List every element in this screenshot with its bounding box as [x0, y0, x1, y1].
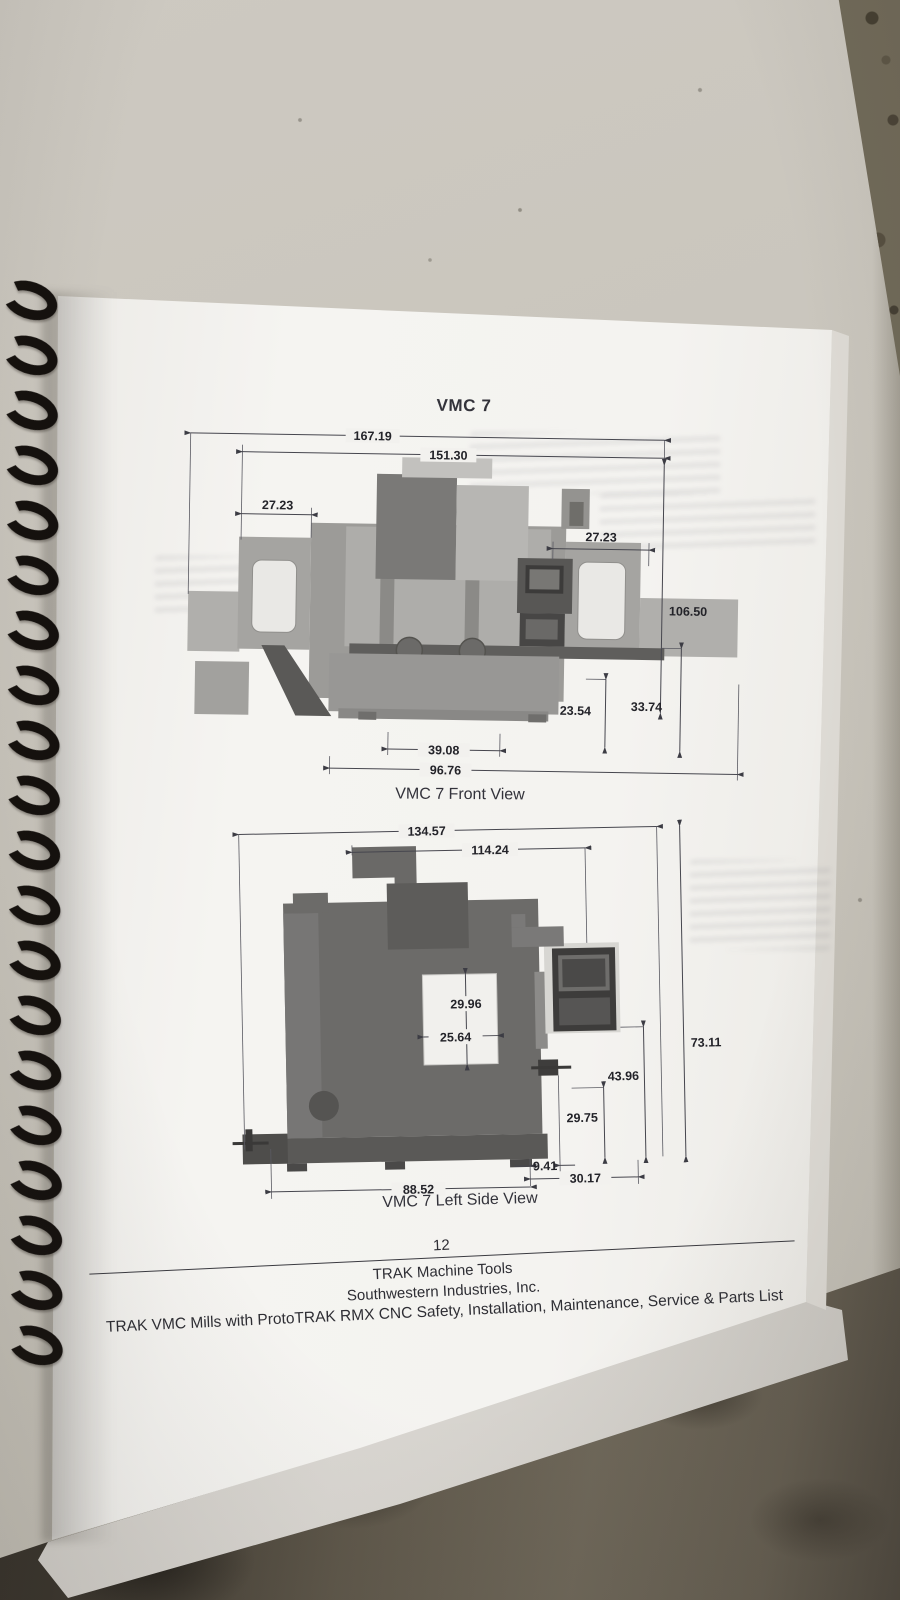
binding-coil [1, 878, 66, 932]
svg-text:167.19: 167.19 [353, 429, 391, 444]
binding-coil [0, 603, 64, 657]
head-block [387, 882, 469, 950]
binding-coil [1, 988, 66, 1042]
svg-text:27.23: 27.23 [262, 498, 294, 512]
foot [287, 1163, 307, 1171]
binding-coil [0, 273, 63, 327]
base-cabinet [328, 653, 559, 715]
svg-text:151.30: 151.30 [429, 448, 467, 463]
pendant-screen-glow [529, 569, 559, 589]
photo-scene: VMC 7 [0, 0, 900, 1600]
binding-coil [0, 328, 63, 382]
front-view-figure: 167.19 151.30 27.23 27.23 106.50 [157, 413, 748, 802]
svg-text:23.54: 23.54 [560, 704, 592, 718]
spiral-binding [2, 282, 98, 1382]
binding-coil [2, 1098, 67, 1152]
dim-pendant-height: 43.96 [607, 1027, 646, 1158]
left-wing [187, 591, 240, 652]
svg-text:25.64: 25.64 [440, 1030, 472, 1045]
svg-text:29.75: 29.75 [566, 1111, 598, 1126]
binding-coil [0, 493, 64, 547]
binding-coil [0, 713, 65, 767]
right-jack-bar [531, 1067, 571, 1068]
pendant-bracket [512, 926, 564, 947]
binding-coil [2, 1153, 67, 1207]
bracket-step [511, 914, 525, 927]
binding-coil [3, 1263, 68, 1317]
svg-text:30.17: 30.17 [570, 1171, 602, 1186]
left-door-window [252, 560, 297, 633]
svg-text:33.74: 33.74 [631, 700, 663, 714]
pendant-keys [526, 619, 558, 640]
svg-text:39.08: 39.08 [428, 743, 460, 757]
binding-coil [3, 1318, 68, 1372]
pendant-screen-inner [562, 958, 606, 987]
side-view-machine [227, 842, 623, 1172]
binding-coil [0, 658, 65, 712]
right-top-unit-dark [569, 502, 583, 526]
front-view-machine [186, 454, 740, 726]
svg-text:27.23: 27.23 [585, 530, 617, 544]
foot [528, 714, 546, 722]
dim-table-height: 33.74 [630, 648, 681, 752]
leveling-jack-stem [245, 1129, 252, 1151]
dim-left-door: 27.23 [241, 498, 312, 538]
binding-coil [1, 933, 66, 987]
binding-coil [0, 438, 64, 492]
dim-window-height: 23.54 [559, 679, 606, 748]
dim-overall-depth: 134.57 [239, 819, 657, 842]
right-door-window [578, 562, 626, 640]
figure-title: VMC 7 [404, 395, 524, 416]
dim-table-width: 39.08 [388, 732, 500, 758]
side-view-figure: 134.57 114.24 29.96 25.64 73.11 [218, 788, 731, 1223]
binding-coil [0, 548, 64, 602]
machine-base [273, 1134, 548, 1164]
dim-overall-height: 106.50 [660, 465, 709, 714]
svg-text:43.96: 43.96 [608, 1069, 640, 1084]
foot [385, 1161, 405, 1169]
svg-text:73.11: 73.11 [691, 1035, 722, 1050]
binding-coil [2, 1043, 67, 1097]
svg-text:134.57: 134.57 [407, 824, 446, 839]
coolant-box [194, 661, 249, 715]
pendant-keypad [559, 997, 611, 1025]
rear-notch [293, 893, 328, 914]
dim-lower-height: 29.75 [566, 1088, 605, 1159]
svg-text:96.76: 96.76 [430, 763, 462, 777]
foot [358, 712, 376, 720]
dim-overall-height: 73.11 [680, 825, 724, 1156]
svg-text:114.24: 114.24 [471, 843, 509, 858]
binding-coil [0, 823, 65, 877]
binding-coil [2, 1208, 67, 1262]
column [375, 474, 457, 580]
dim-overall-width: 167.19 [191, 426, 665, 448]
binding-coil [0, 768, 65, 822]
side-window [422, 974, 498, 1065]
binding-coil [0, 383, 63, 437]
svg-text:106.50: 106.50 [669, 604, 707, 619]
svg-text:29.96: 29.96 [450, 997, 482, 1012]
svg-text:9.41: 9.41 [533, 1159, 558, 1173]
